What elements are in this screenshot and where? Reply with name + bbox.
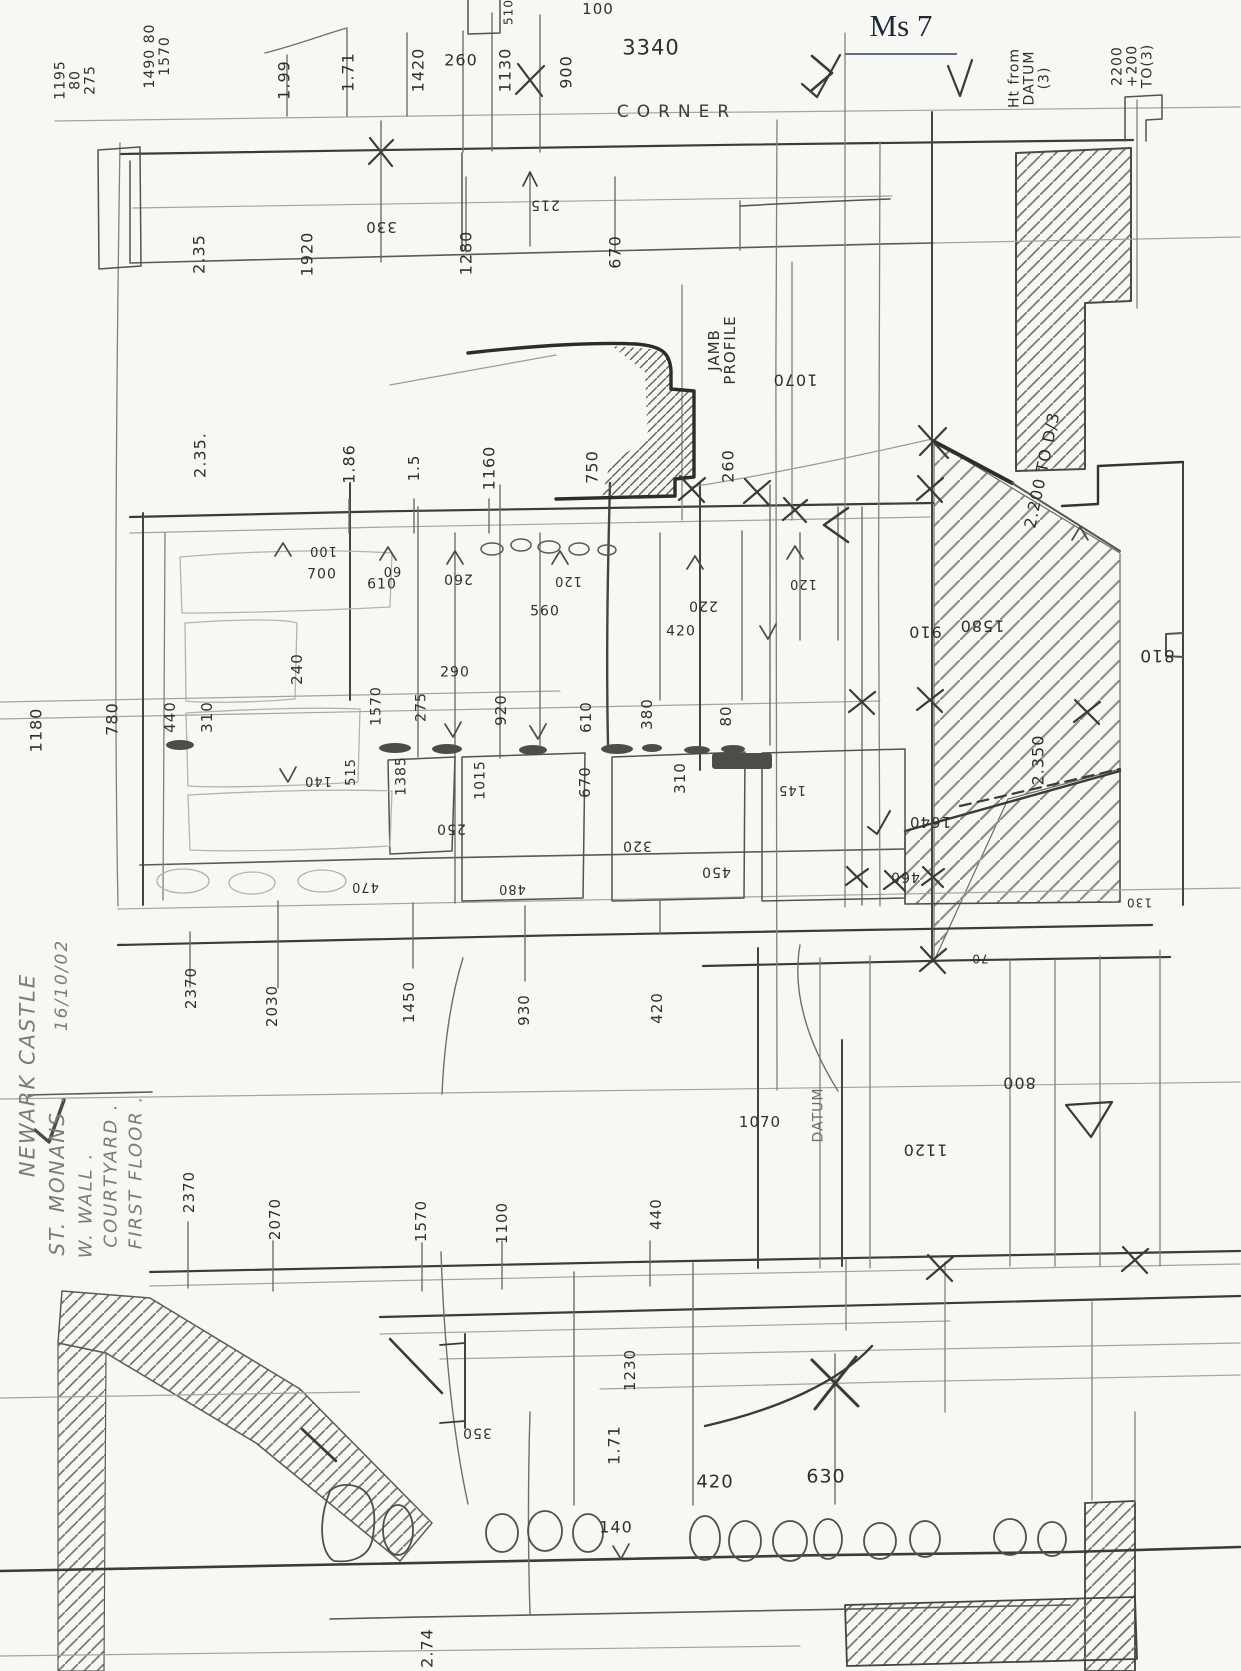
dimension-label: 1180 <box>27 708 44 753</box>
dimension-label: 420 <box>666 624 696 639</box>
dimension-label: 1.99 <box>275 60 292 100</box>
dimension-label: 630 <box>806 1467 845 1488</box>
dimension-label: 80 <box>718 705 734 726</box>
dimension-label: 140 <box>599 1518 633 1535</box>
dimension-label: 700 <box>307 567 337 582</box>
dimension-label: 610 <box>367 577 397 592</box>
dimension-label: 260 <box>444 51 478 68</box>
dimension-label: 130 <box>1126 896 1152 909</box>
dimension-label: 1160 <box>480 446 497 491</box>
dimension-label: 1.71 <box>605 1425 622 1465</box>
datum-label: DATUM <box>811 1088 826 1143</box>
dimension-label: 1120 <box>903 1141 948 1158</box>
dimension-label: 1570 <box>413 1200 429 1242</box>
dimension-label: 310 <box>672 762 688 794</box>
dimension-label: 910 <box>908 623 942 640</box>
dimension-label: 220 <box>688 597 718 612</box>
dimension-label: 1490 80 1570 <box>143 24 173 89</box>
dimension-label: 900 <box>557 55 574 89</box>
dimension-label: 420 <box>649 992 665 1024</box>
corner-label: CORNER <box>617 103 737 121</box>
dimension-label: 810 <box>1139 646 1174 664</box>
dimension-label: 480 <box>498 881 526 895</box>
title-line: FIRST FLOOR . <box>126 1095 145 1249</box>
dimension-label: 515 <box>345 758 359 786</box>
dimension-label: 120 <box>789 576 817 590</box>
dimension-label: 2070 <box>267 1198 283 1240</box>
dimension-label: 1580 <box>960 617 1005 634</box>
dimension-label: 440 <box>162 701 178 733</box>
dimension-label: 1230 <box>622 1349 638 1391</box>
dimension-label: 800 <box>1002 1074 1036 1091</box>
dimension-label: 120 <box>554 573 582 587</box>
dimension-label: 2.200 TO D/3 <box>1021 410 1062 529</box>
dimension-label: 470 <box>351 879 379 893</box>
dimension-label: 2.35. <box>191 432 208 478</box>
dimension-label: 2.74 <box>418 1628 435 1668</box>
dimension-label: 330 <box>365 219 397 235</box>
dimension-label: 1070 <box>773 371 818 388</box>
dimension-label: 1420 <box>409 48 426 93</box>
dimension-label: 1070 <box>739 1114 781 1130</box>
dimension-label: 1385 <box>394 756 409 796</box>
dimension-label: 2200 +200 TO(3) <box>1110 44 1155 88</box>
title-line: W. WALL . <box>76 1152 95 1259</box>
dimension-label: 920 <box>493 694 509 726</box>
dimension-label: 1.86 <box>340 444 357 484</box>
dimension-label: 350 <box>462 1424 492 1439</box>
dimension-label: 380 <box>639 698 655 730</box>
dimension-label: 3340 <box>622 37 679 60</box>
dimension-label: 460 <box>890 868 920 883</box>
dimension-label: 1015 <box>473 760 488 800</box>
dimension-label: 420 <box>696 1472 733 1491</box>
dimension-label: 780 <box>103 702 120 736</box>
title-line: NEWARK CASTLE <box>17 973 40 1177</box>
dimension-label: 100 <box>582 1 614 17</box>
dimension-label: Ht from DATUM (3) <box>1007 48 1052 108</box>
dimension-label: 140 <box>304 773 332 787</box>
dimension-label: 1640 <box>909 814 951 830</box>
dimension-label: 100 <box>309 543 337 557</box>
dimension-label: 1.71 <box>339 52 356 92</box>
dimension-label: 450 <box>701 863 731 878</box>
dimension-label: 2370 <box>183 967 199 1009</box>
dimension-label: 1920 <box>298 232 315 277</box>
survey-sketch-scan: Ms 7 1195 80 2751490 80 15701.991.711420… <box>0 0 1241 1671</box>
dimension-label: 2370 <box>181 1171 197 1213</box>
dimension-label: 60 <box>383 563 402 577</box>
dimension-label: 320 <box>622 837 652 852</box>
dimension-label: 240 <box>289 653 305 685</box>
dimension-label: 260 <box>443 570 473 585</box>
dimension-label: 510 <box>503 0 516 25</box>
dimension-label: 930 <box>516 994 532 1026</box>
dimension-label: 2030 <box>264 985 280 1027</box>
title-line: COURTYARD . <box>101 1102 120 1247</box>
survey-date: 16/10/02 <box>53 939 71 1031</box>
dimension-label: 1.5 <box>406 455 422 482</box>
dimension-label: 145 <box>778 782 806 796</box>
dimension-label: 260 <box>719 449 736 483</box>
dimension-label: 1570 <box>369 686 384 726</box>
dimension-label: 2.35 <box>190 234 207 274</box>
dimension-label: 275 <box>414 692 429 722</box>
dimension-label: 670 <box>577 766 593 798</box>
dimension-label: 1195 80 275 <box>53 60 98 100</box>
dimension-label: 70 <box>971 952 988 965</box>
dimension-label: 1280 <box>457 231 474 276</box>
dimension-label: 215 <box>530 196 560 211</box>
dimension-label: 440 <box>648 1198 664 1230</box>
dimension-label: 560 <box>530 604 560 619</box>
dimension-label: 1100 <box>494 1202 510 1244</box>
dimension-label: 750 <box>583 450 600 484</box>
dimension-label: 1130 <box>496 48 513 93</box>
dimension-label: 670 <box>606 235 623 269</box>
dimension-label: 310 <box>199 701 215 733</box>
jamb-profile-label: JAMB PROFILE <box>706 315 738 384</box>
annotation-layer: 1195 80 2751490 80 15701.991.71142026011… <box>0 0 1241 1671</box>
dimension-label: 2.350 <box>1029 735 1046 786</box>
dimension-label: 290 <box>440 665 470 680</box>
title-line: ST. MONANS . <box>47 1094 69 1255</box>
dimension-label: 250 <box>436 820 466 835</box>
dimension-label: 610 <box>578 701 594 733</box>
dimension-label: 1450 <box>401 981 417 1023</box>
